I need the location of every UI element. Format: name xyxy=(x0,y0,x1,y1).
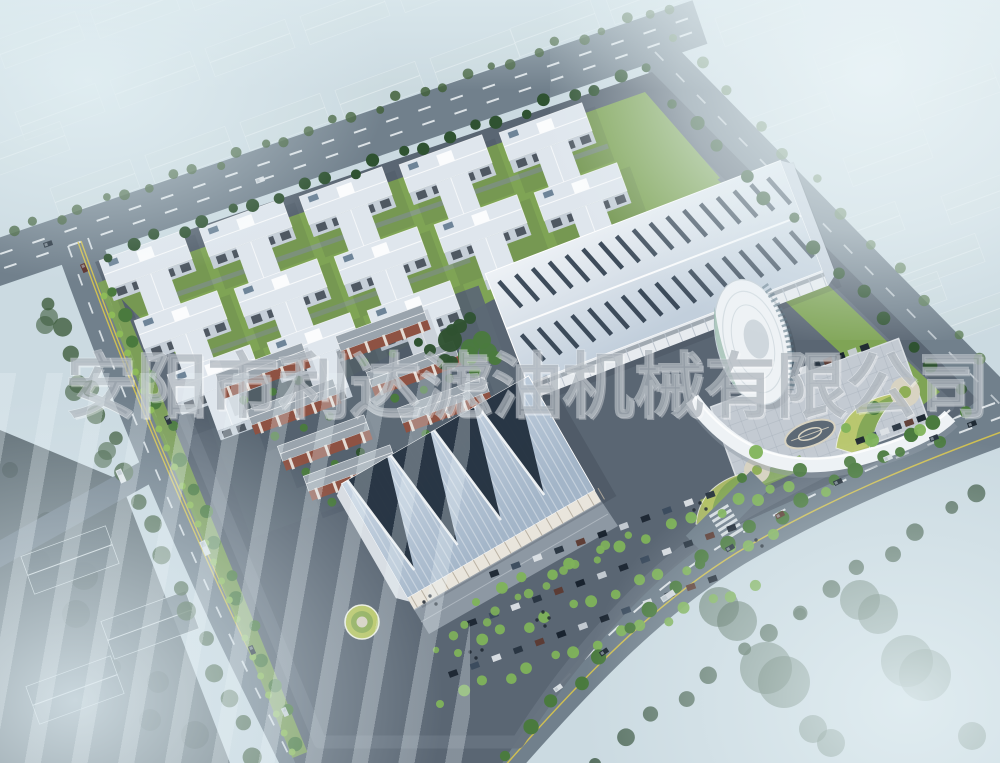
tree xyxy=(254,654,268,668)
hedge xyxy=(179,483,186,490)
tree xyxy=(168,169,178,179)
tree xyxy=(866,240,876,250)
tree xyxy=(625,532,632,539)
tree xyxy=(667,99,677,109)
tree xyxy=(799,715,827,743)
tree xyxy=(793,463,807,477)
tree xyxy=(741,170,754,183)
tree xyxy=(268,679,281,692)
hedge xyxy=(171,464,178,471)
tree xyxy=(421,87,431,97)
tree xyxy=(559,566,568,575)
tree xyxy=(246,199,259,212)
person xyxy=(434,602,437,605)
tree xyxy=(885,546,901,562)
tree xyxy=(733,493,745,505)
watermark-text: 安阳市利达滤油机械有限公司 xyxy=(65,345,988,428)
tree xyxy=(188,484,200,496)
hedge xyxy=(265,692,272,699)
hedge xyxy=(273,711,280,718)
tree xyxy=(490,606,499,615)
hedge xyxy=(226,597,233,604)
tree xyxy=(743,520,756,533)
hedge xyxy=(116,331,123,338)
tree xyxy=(721,85,731,95)
tree xyxy=(231,147,242,158)
tree xyxy=(865,433,879,447)
tree xyxy=(483,618,491,626)
tree xyxy=(718,509,727,518)
tree xyxy=(569,89,581,101)
tree xyxy=(594,556,601,563)
tree xyxy=(641,534,651,544)
tree xyxy=(697,56,709,68)
tree xyxy=(148,229,159,240)
tree xyxy=(118,308,132,322)
tree xyxy=(109,431,123,445)
tree xyxy=(104,254,113,263)
tree xyxy=(678,602,690,614)
tree xyxy=(53,318,72,337)
tree xyxy=(179,226,191,238)
hedge xyxy=(281,730,288,737)
tree xyxy=(227,570,238,581)
person xyxy=(698,501,701,504)
tree xyxy=(575,676,589,690)
tree xyxy=(463,68,474,79)
tree xyxy=(682,566,691,575)
tree xyxy=(433,647,439,653)
tree xyxy=(537,93,550,106)
tree xyxy=(710,139,722,151)
tree xyxy=(679,691,695,707)
tree xyxy=(793,493,808,508)
tree xyxy=(695,559,705,569)
tree xyxy=(600,540,610,550)
tree xyxy=(567,646,579,658)
tree xyxy=(36,316,54,334)
hedge xyxy=(210,559,217,566)
tree xyxy=(436,700,444,708)
tree xyxy=(119,189,130,200)
tree xyxy=(794,608,806,620)
aerial-rendering: 安阳市利达滤油机械有限公司 安阳市利达滤油机械有限公司 xyxy=(0,0,1000,763)
person xyxy=(474,656,477,659)
tree xyxy=(725,591,736,602)
tree xyxy=(144,515,162,533)
tree xyxy=(877,311,891,325)
tree xyxy=(506,673,517,684)
tree xyxy=(665,5,675,15)
tree xyxy=(488,62,495,69)
tree xyxy=(449,631,458,640)
person xyxy=(704,507,707,510)
hedge xyxy=(289,749,296,756)
person xyxy=(547,616,550,619)
hedge xyxy=(163,445,170,452)
tree xyxy=(28,217,37,226)
person xyxy=(468,650,471,653)
tree xyxy=(524,622,535,633)
tree xyxy=(967,484,985,502)
tree xyxy=(813,174,822,183)
hedge xyxy=(242,635,249,642)
tree xyxy=(760,624,778,642)
person xyxy=(692,508,695,511)
tree xyxy=(669,34,677,42)
tree xyxy=(756,191,770,205)
tree xyxy=(895,447,905,457)
tree xyxy=(278,137,288,147)
tree xyxy=(217,162,225,170)
person xyxy=(760,544,763,547)
tree xyxy=(328,115,337,124)
tree xyxy=(454,649,462,657)
tree xyxy=(646,10,655,19)
tree xyxy=(174,581,188,595)
tree xyxy=(131,494,147,510)
tree xyxy=(543,582,551,590)
hedge xyxy=(234,616,241,623)
tree xyxy=(643,706,658,721)
tree xyxy=(145,184,154,193)
person xyxy=(754,538,757,541)
tree xyxy=(500,751,510,761)
tree xyxy=(444,131,456,143)
tree xyxy=(177,601,196,620)
tree xyxy=(789,213,799,223)
tree xyxy=(470,119,481,130)
tree xyxy=(229,204,238,213)
tree xyxy=(522,110,532,120)
tree xyxy=(458,685,470,697)
tree xyxy=(881,635,933,687)
tree xyxy=(622,12,633,23)
tree xyxy=(598,28,606,36)
tree xyxy=(199,631,214,646)
tree xyxy=(593,641,603,651)
tree xyxy=(821,487,831,497)
tree xyxy=(236,715,251,730)
tree xyxy=(756,121,767,132)
tree xyxy=(477,675,487,685)
tree xyxy=(634,620,645,631)
tree xyxy=(390,91,400,101)
tree xyxy=(752,494,764,506)
tree xyxy=(699,667,716,684)
tree xyxy=(495,624,505,634)
tree xyxy=(94,450,112,468)
person xyxy=(428,594,431,597)
tree xyxy=(958,722,986,750)
tree xyxy=(318,172,331,185)
tree xyxy=(685,512,696,523)
tree xyxy=(858,285,871,298)
tree xyxy=(535,48,544,57)
flower-bed-center xyxy=(357,617,368,628)
person xyxy=(422,600,425,603)
tree xyxy=(128,238,141,251)
tree xyxy=(103,193,111,201)
person xyxy=(480,648,483,651)
person xyxy=(535,618,538,621)
tree xyxy=(906,523,923,540)
tree xyxy=(709,594,718,603)
tree xyxy=(743,540,754,551)
tree xyxy=(438,83,447,92)
person xyxy=(541,610,544,613)
tree xyxy=(516,572,526,582)
tree xyxy=(262,139,270,147)
tree xyxy=(351,169,361,179)
tree xyxy=(460,621,468,629)
tree xyxy=(835,208,847,220)
tree xyxy=(569,600,578,609)
tree xyxy=(205,664,223,682)
tree xyxy=(823,580,841,598)
tree xyxy=(476,634,488,646)
tree xyxy=(585,595,597,607)
tree xyxy=(489,116,502,129)
tree xyxy=(652,569,663,580)
tree xyxy=(274,193,285,204)
tree xyxy=(152,546,170,564)
tree xyxy=(524,589,534,599)
hedge xyxy=(101,293,108,300)
tree xyxy=(840,580,880,620)
tree xyxy=(200,505,213,518)
tree xyxy=(642,602,658,618)
tree xyxy=(376,106,384,114)
tree xyxy=(738,642,751,655)
tree xyxy=(523,719,538,734)
tree xyxy=(221,690,239,708)
person xyxy=(543,624,546,627)
tree xyxy=(642,63,651,72)
tree xyxy=(249,620,260,631)
tree xyxy=(544,694,557,707)
tree xyxy=(453,319,467,333)
tree xyxy=(750,580,761,591)
tree xyxy=(57,215,67,225)
tree xyxy=(346,112,357,123)
hedge xyxy=(195,521,202,528)
tree xyxy=(666,518,677,529)
tree xyxy=(617,728,635,746)
tree xyxy=(625,622,636,633)
tree xyxy=(690,116,704,130)
tree xyxy=(304,126,314,136)
tree xyxy=(955,330,964,339)
tree xyxy=(768,529,779,540)
tree xyxy=(844,456,856,468)
tree xyxy=(472,598,480,606)
tree xyxy=(783,481,794,492)
tree xyxy=(570,560,579,569)
tree xyxy=(895,263,906,274)
tree xyxy=(588,85,599,96)
industrial-park-scene: 安阳市利达滤油机械有限公司 安阳市利达滤油机械有限公司 xyxy=(0,0,1000,763)
tree xyxy=(515,594,522,601)
tree xyxy=(611,590,621,600)
hedge xyxy=(187,502,194,509)
hedge xyxy=(108,312,115,319)
tree xyxy=(634,574,645,585)
tree xyxy=(550,37,559,46)
tree xyxy=(399,146,409,156)
tree xyxy=(520,662,532,674)
tree xyxy=(749,445,763,459)
tree xyxy=(737,473,747,483)
tree xyxy=(107,287,117,297)
tree xyxy=(496,582,508,594)
hedge xyxy=(218,578,225,585)
tree xyxy=(918,295,929,306)
tree xyxy=(72,205,82,215)
tree xyxy=(579,35,590,46)
tree xyxy=(9,226,20,237)
tree xyxy=(945,501,958,514)
tree xyxy=(776,148,788,160)
tree xyxy=(615,69,628,82)
tree xyxy=(42,298,55,311)
tree xyxy=(505,59,516,70)
tree xyxy=(765,484,774,493)
tree xyxy=(849,560,864,575)
tree xyxy=(664,617,673,626)
hedge xyxy=(257,673,264,680)
tree xyxy=(614,541,626,553)
tree xyxy=(299,178,311,190)
tree xyxy=(547,569,558,580)
tree xyxy=(187,164,197,174)
tree xyxy=(833,267,845,279)
tree xyxy=(806,240,820,254)
tree xyxy=(195,215,208,228)
tree xyxy=(417,143,429,155)
tree xyxy=(366,154,379,167)
tree xyxy=(551,651,560,660)
